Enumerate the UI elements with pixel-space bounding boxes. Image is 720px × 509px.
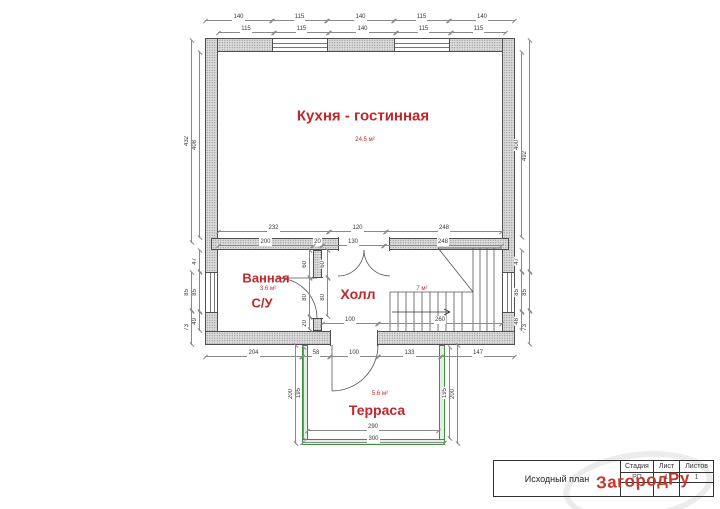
dimension-195: 195 bbox=[303, 347, 304, 439]
dimension-130: 130 bbox=[322, 245, 384, 246]
dimension-115: 115 bbox=[218, 32, 274, 33]
dimension-204: 204 bbox=[205, 356, 302, 357]
dimension-200: 200 bbox=[457, 345, 458, 444]
dimension-73: 73 bbox=[529, 310, 530, 345]
dimension-49: 49 bbox=[199, 312, 200, 331]
dimension-60: 60 bbox=[309, 250, 310, 278]
door-arc-hall-left bbox=[338, 250, 364, 276]
dimension-47: 47 bbox=[199, 250, 200, 272]
dimension-492: 492 bbox=[529, 40, 530, 272]
dimension-200: 200 bbox=[218, 245, 313, 246]
dimension-80: 80 bbox=[327, 278, 328, 317]
dimension-248: 248 bbox=[384, 245, 502, 246]
dimension-80: 80 bbox=[309, 278, 310, 317]
dimension-115: 115 bbox=[396, 32, 451, 33]
dimension-140: 140 bbox=[449, 20, 515, 21]
dimension-100: 100 bbox=[330, 356, 378, 357]
dimension-140: 140 bbox=[327, 20, 394, 21]
dimension-115: 115 bbox=[272, 20, 327, 21]
room-area-terrace: 5.6 м² bbox=[372, 391, 388, 397]
dimension-140: 140 bbox=[205, 20, 272, 21]
staircase bbox=[390, 248, 502, 331]
dimension-300: 300 bbox=[302, 442, 445, 443]
doors-and-stairs-drawing bbox=[0, 0, 720, 509]
dimension-58: 58 bbox=[302, 356, 330, 357]
room-area-kitchen: 24.5 м² bbox=[355, 137, 374, 143]
dimension-115: 115 bbox=[451, 32, 506, 33]
dimension-60: 60 bbox=[327, 250, 328, 278]
room-label-hall: Холл bbox=[340, 286, 375, 302]
dimension-147: 147 bbox=[441, 356, 515, 357]
dimension-133: 133 bbox=[378, 356, 441, 357]
dimension-115: 115 bbox=[274, 32, 329, 33]
dimension-85: 85 bbox=[199, 272, 200, 312]
dimension-260: 260 bbox=[378, 323, 502, 324]
dimension-400: 400 bbox=[521, 52, 522, 238]
stair-direction-arrow bbox=[392, 309, 450, 315]
dimension-73: 73 bbox=[191, 310, 192, 345]
room-label-terrace: Терраса bbox=[349, 402, 405, 418]
room-label-kitchen: Кухня - гостинная bbox=[297, 108, 429, 125]
dimension-232: 232 bbox=[218, 231, 329, 232]
dimension-408: 408 bbox=[199, 52, 200, 238]
dimension-120: 120 bbox=[329, 231, 386, 232]
room-area-bathroom: 3.6 м² bbox=[260, 286, 276, 292]
dimension-85: 85 bbox=[529, 272, 530, 312]
room-area-hall: 7 м² bbox=[416, 286, 427, 292]
dimension-47: 47 bbox=[521, 250, 522, 272]
door-arc-hall-right bbox=[364, 250, 390, 276]
room-label-bathroom: Ванная bbox=[242, 271, 289, 286]
dimension-290: 290 bbox=[307, 430, 439, 431]
room-label-su: С/У bbox=[251, 296, 272, 311]
dimension-20: 20 bbox=[309, 317, 310, 330]
dimension-100: 100 bbox=[322, 323, 378, 324]
floor-plan-page: Кухня - гостинная 24.5 м² Ванная 3.6 м² … bbox=[0, 0, 720, 509]
dimension-115: 115 bbox=[394, 20, 449, 21]
dimension-140: 140 bbox=[329, 32, 396, 33]
dimension-248: 248 bbox=[386, 231, 502, 232]
